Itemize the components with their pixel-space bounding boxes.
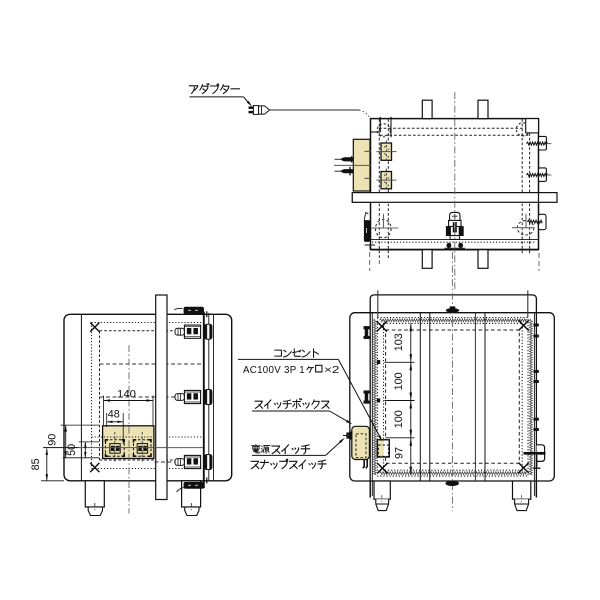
svg-text:140: 140 xyxy=(117,389,136,401)
svg-text:48: 48 xyxy=(108,408,120,420)
svg-text:100: 100 xyxy=(393,372,405,390)
svg-text:90: 90 xyxy=(47,434,59,446)
svg-text:×2: ×2 xyxy=(324,365,340,376)
svg-text:50: 50 xyxy=(66,444,78,456)
svg-text:103: 103 xyxy=(393,333,405,351)
svg-text:AC100V 3P 1: AC100V 3P 1 xyxy=(243,365,305,376)
svg-text:97: 97 xyxy=(393,447,405,459)
svg-text:100: 100 xyxy=(393,410,405,428)
svg-text:85: 85 xyxy=(30,458,42,470)
